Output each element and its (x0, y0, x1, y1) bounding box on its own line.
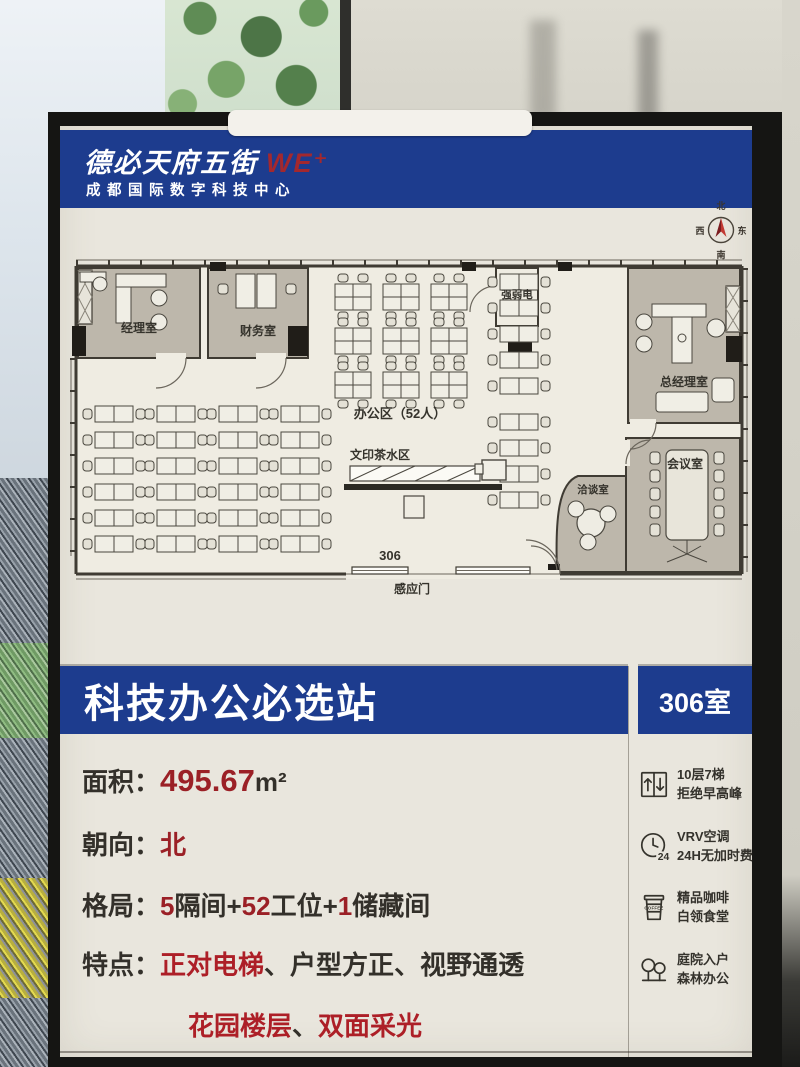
feature-light: 双面采光 (318, 1011, 422, 1041)
floorplan-svg: 经理室 财务室 强弱电 总经理室 办公区（52人） 文印茶水区 洽谈室 会议室 … (60, 246, 752, 602)
coffee-icon: COFFEE (638, 892, 670, 924)
brand-subtitle: 成都国际数字科技中心 (86, 179, 296, 200)
glass-wall (351, 0, 800, 122)
amenity-hvac: 24 VRV空调 24H无加时费 (638, 828, 756, 866)
layout-label: 格局： (82, 891, 160, 921)
feature-view: 视野通透 (420, 950, 524, 980)
feature-garden: 花园楼层 (188, 1011, 292, 1041)
amenity-garden: 庭院入户 森林办公 (638, 951, 756, 989)
amenity-line2: 白领食堂 (677, 908, 729, 927)
spec-features-line2: 花园楼层、双面采光 (188, 1006, 622, 1043)
orientation-label: 朝向： (82, 830, 160, 860)
layout-seats-count: 52 (242, 891, 271, 921)
amenities-list: 10层7梯 拒绝早高峰 24 VRV空调 24H无加时费 (638, 766, 756, 1013)
amenity-text: 精品咖啡 白领食堂 (677, 889, 729, 927)
compass-north-label: 北 (716, 200, 725, 211)
feature-sep: 、 (394, 950, 420, 980)
amenity-text: VRV空调 24H无加时费 (677, 828, 753, 866)
brand-name: 德必天府五街WE⁺ (84, 141, 330, 180)
layout-rooms-word: 隔间+ (174, 891, 241, 921)
room-number-text: 306室 (659, 681, 731, 720)
brand-name-text: 德必天府五街 (84, 148, 258, 178)
spec-features-line1: 特点：正对电梯、户型方正、视野通透 (82, 945, 622, 982)
shaft-right (726, 286, 740, 332)
amenity-line2: 森林办公 (677, 970, 729, 989)
feature-sep: 、 (264, 950, 290, 980)
label-room-number: 306 (379, 548, 401, 563)
coffee-cup-text: COFFEE (644, 906, 663, 911)
amenity-elevator: 10层7梯 拒绝早高峰 (638, 766, 756, 804)
glass-reflection (530, 20, 556, 120)
poster-panel: 德必天府五街WE⁺ 成都国际数字科技中心 北 东 南 西 (60, 126, 752, 1057)
panel-bottom-edge (60, 1051, 752, 1053)
orientation-value: 北 (160, 830, 186, 860)
area-value: 495.67 (160, 763, 255, 798)
amenity-line1: VRV空调 (677, 828, 753, 847)
label-manager-room: 经理室 (121, 320, 157, 335)
amenity-line2: 24H无加时费 (677, 847, 753, 866)
compass-east-label: 东 (737, 225, 746, 236)
trees-icon (638, 954, 670, 986)
feature-elevator: 正对电梯 (160, 950, 264, 980)
panel-seam (628, 666, 629, 1057)
page-title: 科技办公必选站 (84, 671, 378, 729)
label-print-tea: 文印茶水区 (350, 447, 410, 462)
feature-square: 户型方正 (290, 950, 394, 980)
area-label: 面积： (82, 767, 160, 797)
layout-storage-word: 储藏间 (352, 891, 430, 921)
label-utility-room: 强弱电 (501, 288, 533, 301)
poster-hanger-tab (228, 110, 532, 136)
room-number-badge: 306室 (638, 666, 752, 734)
spec-area: 面积：495.67m² (82, 762, 622, 799)
amenity-line1: 庭院入户 (677, 951, 729, 970)
brand-logo-we: WE⁺ (266, 148, 330, 178)
label-office-area: 办公区（52人） (354, 406, 446, 421)
label-negotiation-room: 洽谈室 (577, 483, 609, 496)
feature-sep: 、 (292, 1011, 318, 1041)
poster-board: 德必天府五街WE⁺ 成都国际数字科技中心 北 东 南 西 (48, 112, 782, 1067)
clock-24-icon: 24 (638, 831, 670, 863)
amenity-text: 10层7梯 拒绝早高峰 (677, 766, 742, 804)
amenity-coffee: COFFEE 精品咖啡 白领食堂 (638, 889, 756, 927)
compass-west-label: 西 (695, 226, 704, 236)
label-finance-room: 财务室 (239, 323, 276, 338)
layout-rooms-count: 5 (160, 891, 174, 921)
amenity-line1: 10层7梯 (677, 766, 742, 785)
layout-storage-count: 1 (338, 891, 352, 921)
label-conference-room: 会议室 (667, 456, 703, 471)
clock-24-text: 24 (658, 852, 670, 863)
spec-orientation: 朝向：北 (82, 825, 622, 862)
glass-reflection (638, 30, 658, 122)
photo-scene: 德必天府五街WE⁺ 成都国际数字科技中心 北 东 南 西 (0, 0, 800, 1067)
specs-list: 面积：495.67m² 朝向：北 格局：5隔间+52工位+1储藏间 特点：正对电… (82, 762, 622, 1043)
amenity-line2: 拒绝早高峰 (677, 785, 742, 804)
amenity-line1: 精品咖啡 (677, 889, 729, 908)
elevator-icon (638, 769, 670, 801)
title-bar: 科技办公必选站 (60, 666, 628, 734)
spec-layout: 格局：5隔间+52工位+1储藏间 (82, 886, 622, 923)
brand-header: 德必天府五街WE⁺ 成都国际数字科技中心 (60, 130, 752, 208)
window-with-trees (165, 0, 351, 122)
background-edge (782, 0, 800, 1067)
label-entrance-door: 感应门 (394, 581, 430, 596)
area-unit: m² (255, 767, 287, 797)
label-gm-office: 总经理室 (660, 374, 708, 389)
amenity-text: 庭院入户 森林办公 (677, 951, 729, 989)
layout-seats-word: 工位+ (271, 891, 338, 921)
features-label: 特点： (82, 950, 160, 980)
